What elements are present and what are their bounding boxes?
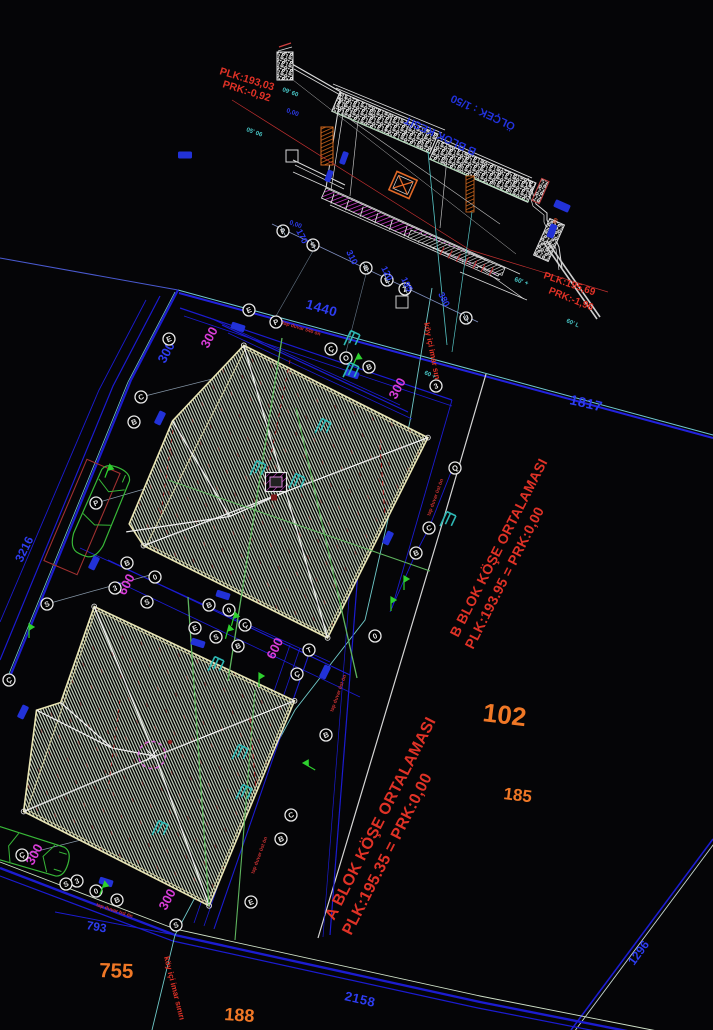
svg-text:185: 185: [503, 784, 533, 806]
svg-text:102: 102: [481, 697, 528, 732]
svg-text:188: 188: [224, 1004, 255, 1026]
svg-text:755: 755: [99, 959, 134, 983]
